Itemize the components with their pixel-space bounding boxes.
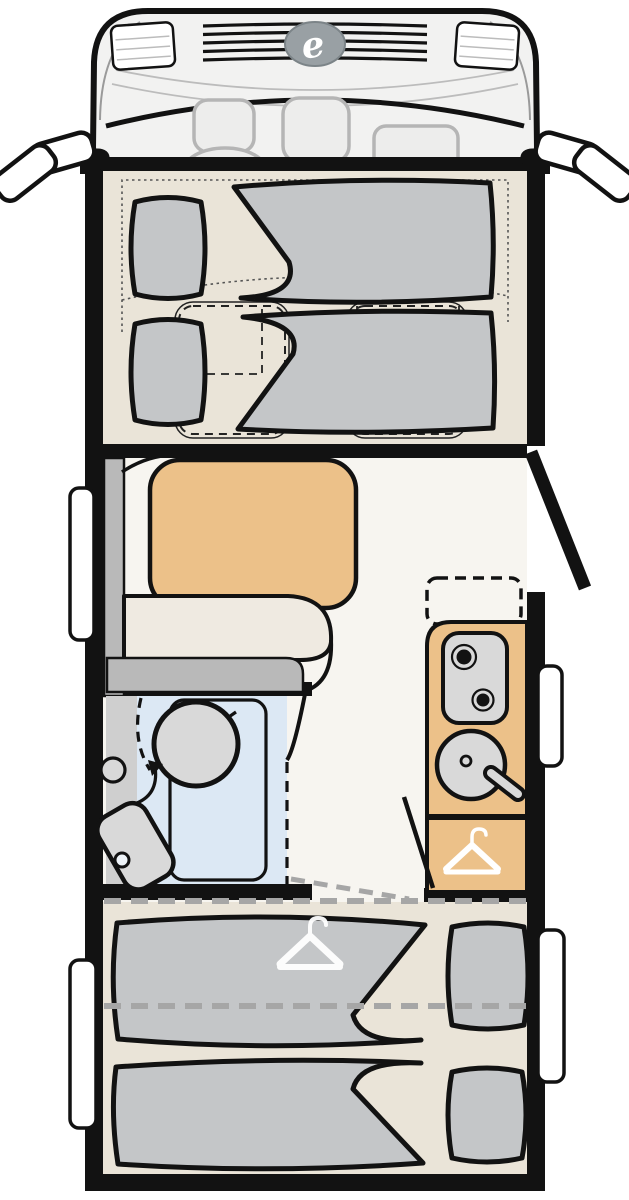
front-bed-pillow-2 xyxy=(131,320,205,425)
front-bed-pillow-1 xyxy=(131,198,205,299)
rear-wall xyxy=(85,1174,545,1191)
window-right-rear xyxy=(538,930,564,1082)
rear-bed-pillow-2 xyxy=(448,1068,526,1162)
headlight-right xyxy=(455,22,520,70)
brand-logo: e xyxy=(285,22,345,68)
driver-seat xyxy=(194,100,254,152)
front-wall xyxy=(93,157,537,171)
lounge-bench-backrest xyxy=(107,658,303,692)
burner-1 xyxy=(457,650,472,665)
motorhome-floorplan: e xyxy=(0,0,629,1200)
sink-drain xyxy=(461,756,471,766)
swivel-knob xyxy=(101,758,125,782)
window-left-rear xyxy=(70,960,96,1128)
kitchen xyxy=(427,578,527,892)
dinette-table xyxy=(150,460,356,608)
toilet-flush xyxy=(115,853,129,867)
window-left-mid xyxy=(70,488,94,640)
burner-2 xyxy=(477,694,490,707)
rear-bed-pillow-1 xyxy=(448,923,528,1029)
window-right-mid xyxy=(538,666,562,766)
kitchen-sink xyxy=(437,731,505,799)
floorplan-svg: e xyxy=(0,0,629,1200)
lounge-bench-seat xyxy=(124,596,331,660)
washbasin xyxy=(154,702,238,786)
headlight-left xyxy=(111,22,176,70)
bathroom xyxy=(91,694,305,895)
middle-seat xyxy=(283,98,349,162)
hob xyxy=(443,633,507,723)
